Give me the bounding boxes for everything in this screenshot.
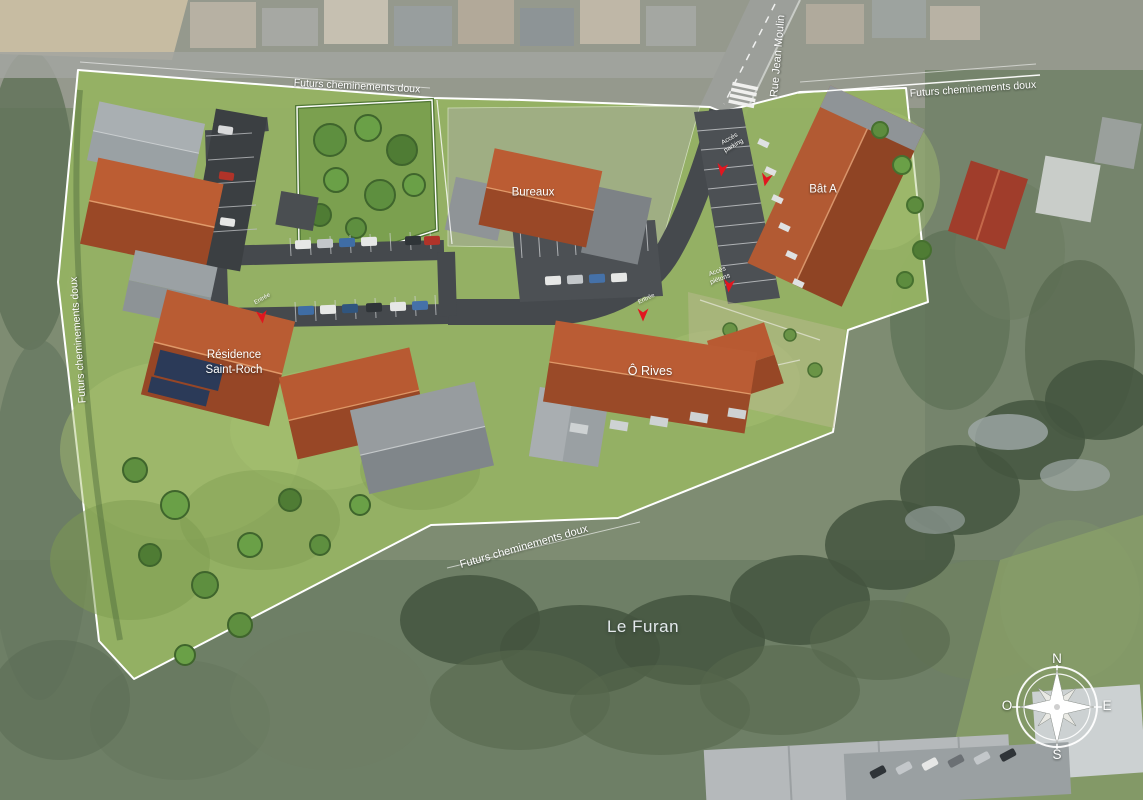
site-plan-canvas: Futurs cheminements doux Futurs cheminem… (0, 0, 1143, 800)
aerial-map-graphic (0, 0, 1143, 800)
community-garden (297, 100, 437, 254)
